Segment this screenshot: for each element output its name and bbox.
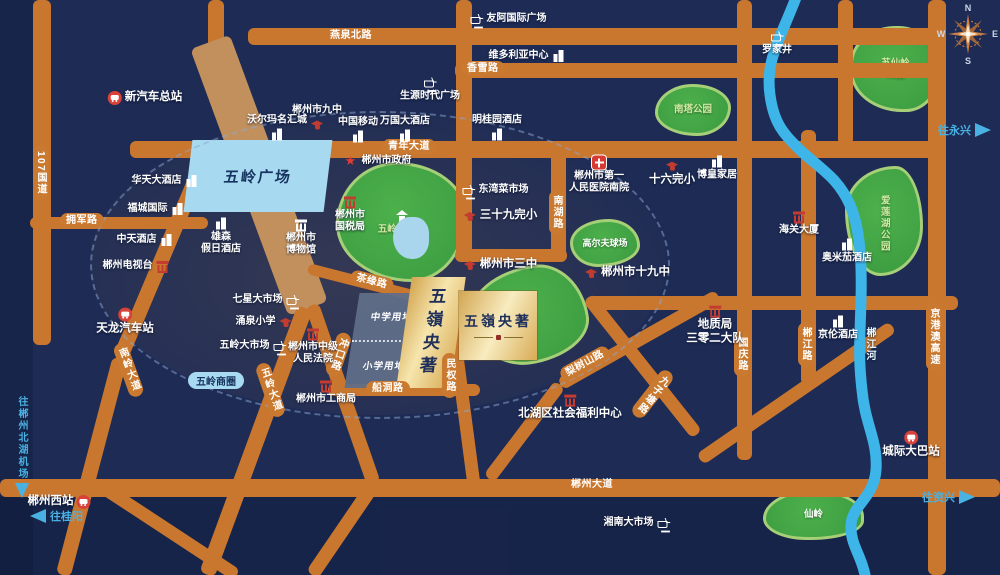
road-youa: [456, 0, 472, 260]
arrow-right-icon: [959, 490, 975, 504]
park-label: 高尔夫球场: [582, 238, 627, 249]
project-name: 五嶺央著: [464, 311, 532, 331]
bus-icon: [108, 91, 122, 105]
label-road-xiangxue: 香雪路: [461, 61, 505, 76]
arrow-left-icon: [30, 509, 46, 523]
arrow-zixing: 往资兴: [922, 489, 975, 505]
compass-n: N: [965, 3, 972, 13]
road-845: [838, 0, 853, 145]
arrow-label: 往桂阳: [50, 508, 83, 524]
wuling-plaza-label: 五岭广场: [223, 166, 294, 187]
label-road-minquan: 民权路: [442, 353, 457, 398]
location-map: 五岭阁公园 高尔夫球场 南塔公园 苏仙岭公园 爱莲湖公园 仙岭: [0, 0, 1000, 575]
map-poi: 博皇家居: [697, 155, 737, 182]
park-label: 南塔公园: [674, 104, 712, 115]
map-poi: 生源时代广场: [400, 76, 460, 103]
label-chenjiang-river: 郴江河: [862, 322, 877, 367]
road-chenzhoudadao: [0, 479, 1000, 497]
cart-icon: [657, 516, 671, 530]
label-road-guoqing: 国庆路: [734, 332, 749, 377]
label-road-chenjianglu: 郴江路: [798, 322, 813, 367]
building-icon: [831, 315, 845, 329]
compass-rose: N E S W: [936, 2, 1000, 66]
project-logo-plate: 五嶺央著: [459, 291, 537, 360]
seal-icon: [496, 335, 501, 340]
building-icon: [552, 49, 566, 63]
park-label: 爱莲湖公园: [878, 195, 889, 253]
arrow-right-icon: [975, 123, 991, 137]
map-poi: 湘南大市场: [604, 516, 671, 530]
label-road-jinggangao: 京港澳高速: [926, 303, 941, 371]
park-label: 仙岭: [804, 509, 823, 520]
arrow-label: 往永兴: [938, 122, 971, 138]
inst-red-icon: [563, 393, 577, 407]
arrow-guiyang: 往桂阳: [30, 508, 83, 524]
arrow-airport: 往郴州北湖机场: [14, 396, 29, 498]
map-poi: 京伦酒店: [818, 315, 858, 342]
arrow-label: 往资兴: [922, 489, 955, 505]
map-poi: 新汽车总站: [108, 91, 183, 105]
compass-e: E: [992, 29, 998, 39]
label-road-chenzhoudadao: 郴州大道: [565, 477, 619, 492]
arrow-label: 往郴州北湖机场: [14, 396, 29, 480]
compass-w: W: [937, 29, 946, 39]
label-road-nanhu: 南湖路: [549, 190, 564, 235]
lake: [393, 217, 429, 259]
cap-icon: [665, 159, 679, 173]
compass-s: S: [965, 56, 971, 66]
park-xianling: 仙岭: [763, 490, 864, 540]
wuling-plaza: 五岭广场: [184, 140, 333, 212]
road-nanling-lower: [56, 357, 127, 575]
label-road-yanquanbei: 燕泉北路: [324, 28, 378, 43]
arrow-down-icon: [15, 483, 29, 498]
arrow-yongxing: 往永兴: [938, 122, 991, 138]
logo-ornament: [474, 335, 523, 340]
label-road-g107: 107国道: [33, 146, 48, 200]
label-road-yongjun: 拥军路: [60, 213, 104, 228]
business-circle-badge: 五岭商圈: [188, 372, 244, 389]
park-nanta: 南塔公园: [655, 84, 731, 136]
road-xiangxue: [455, 63, 943, 78]
bus-icon: [904, 431, 918, 445]
label-road-qingnian: 青年大道: [382, 139, 436, 154]
label-road-chuandong: 船洞路: [366, 381, 410, 396]
park-ailianhu: 爱莲湖公园: [845, 166, 923, 276]
map-poi: 友阿国际广场: [470, 12, 547, 26]
map-poi: 十六完小: [649, 159, 695, 188]
road-mid-right: [588, 296, 958, 310]
road-guoqing: [737, 0, 752, 460]
cart-icon: [423, 76, 437, 90]
